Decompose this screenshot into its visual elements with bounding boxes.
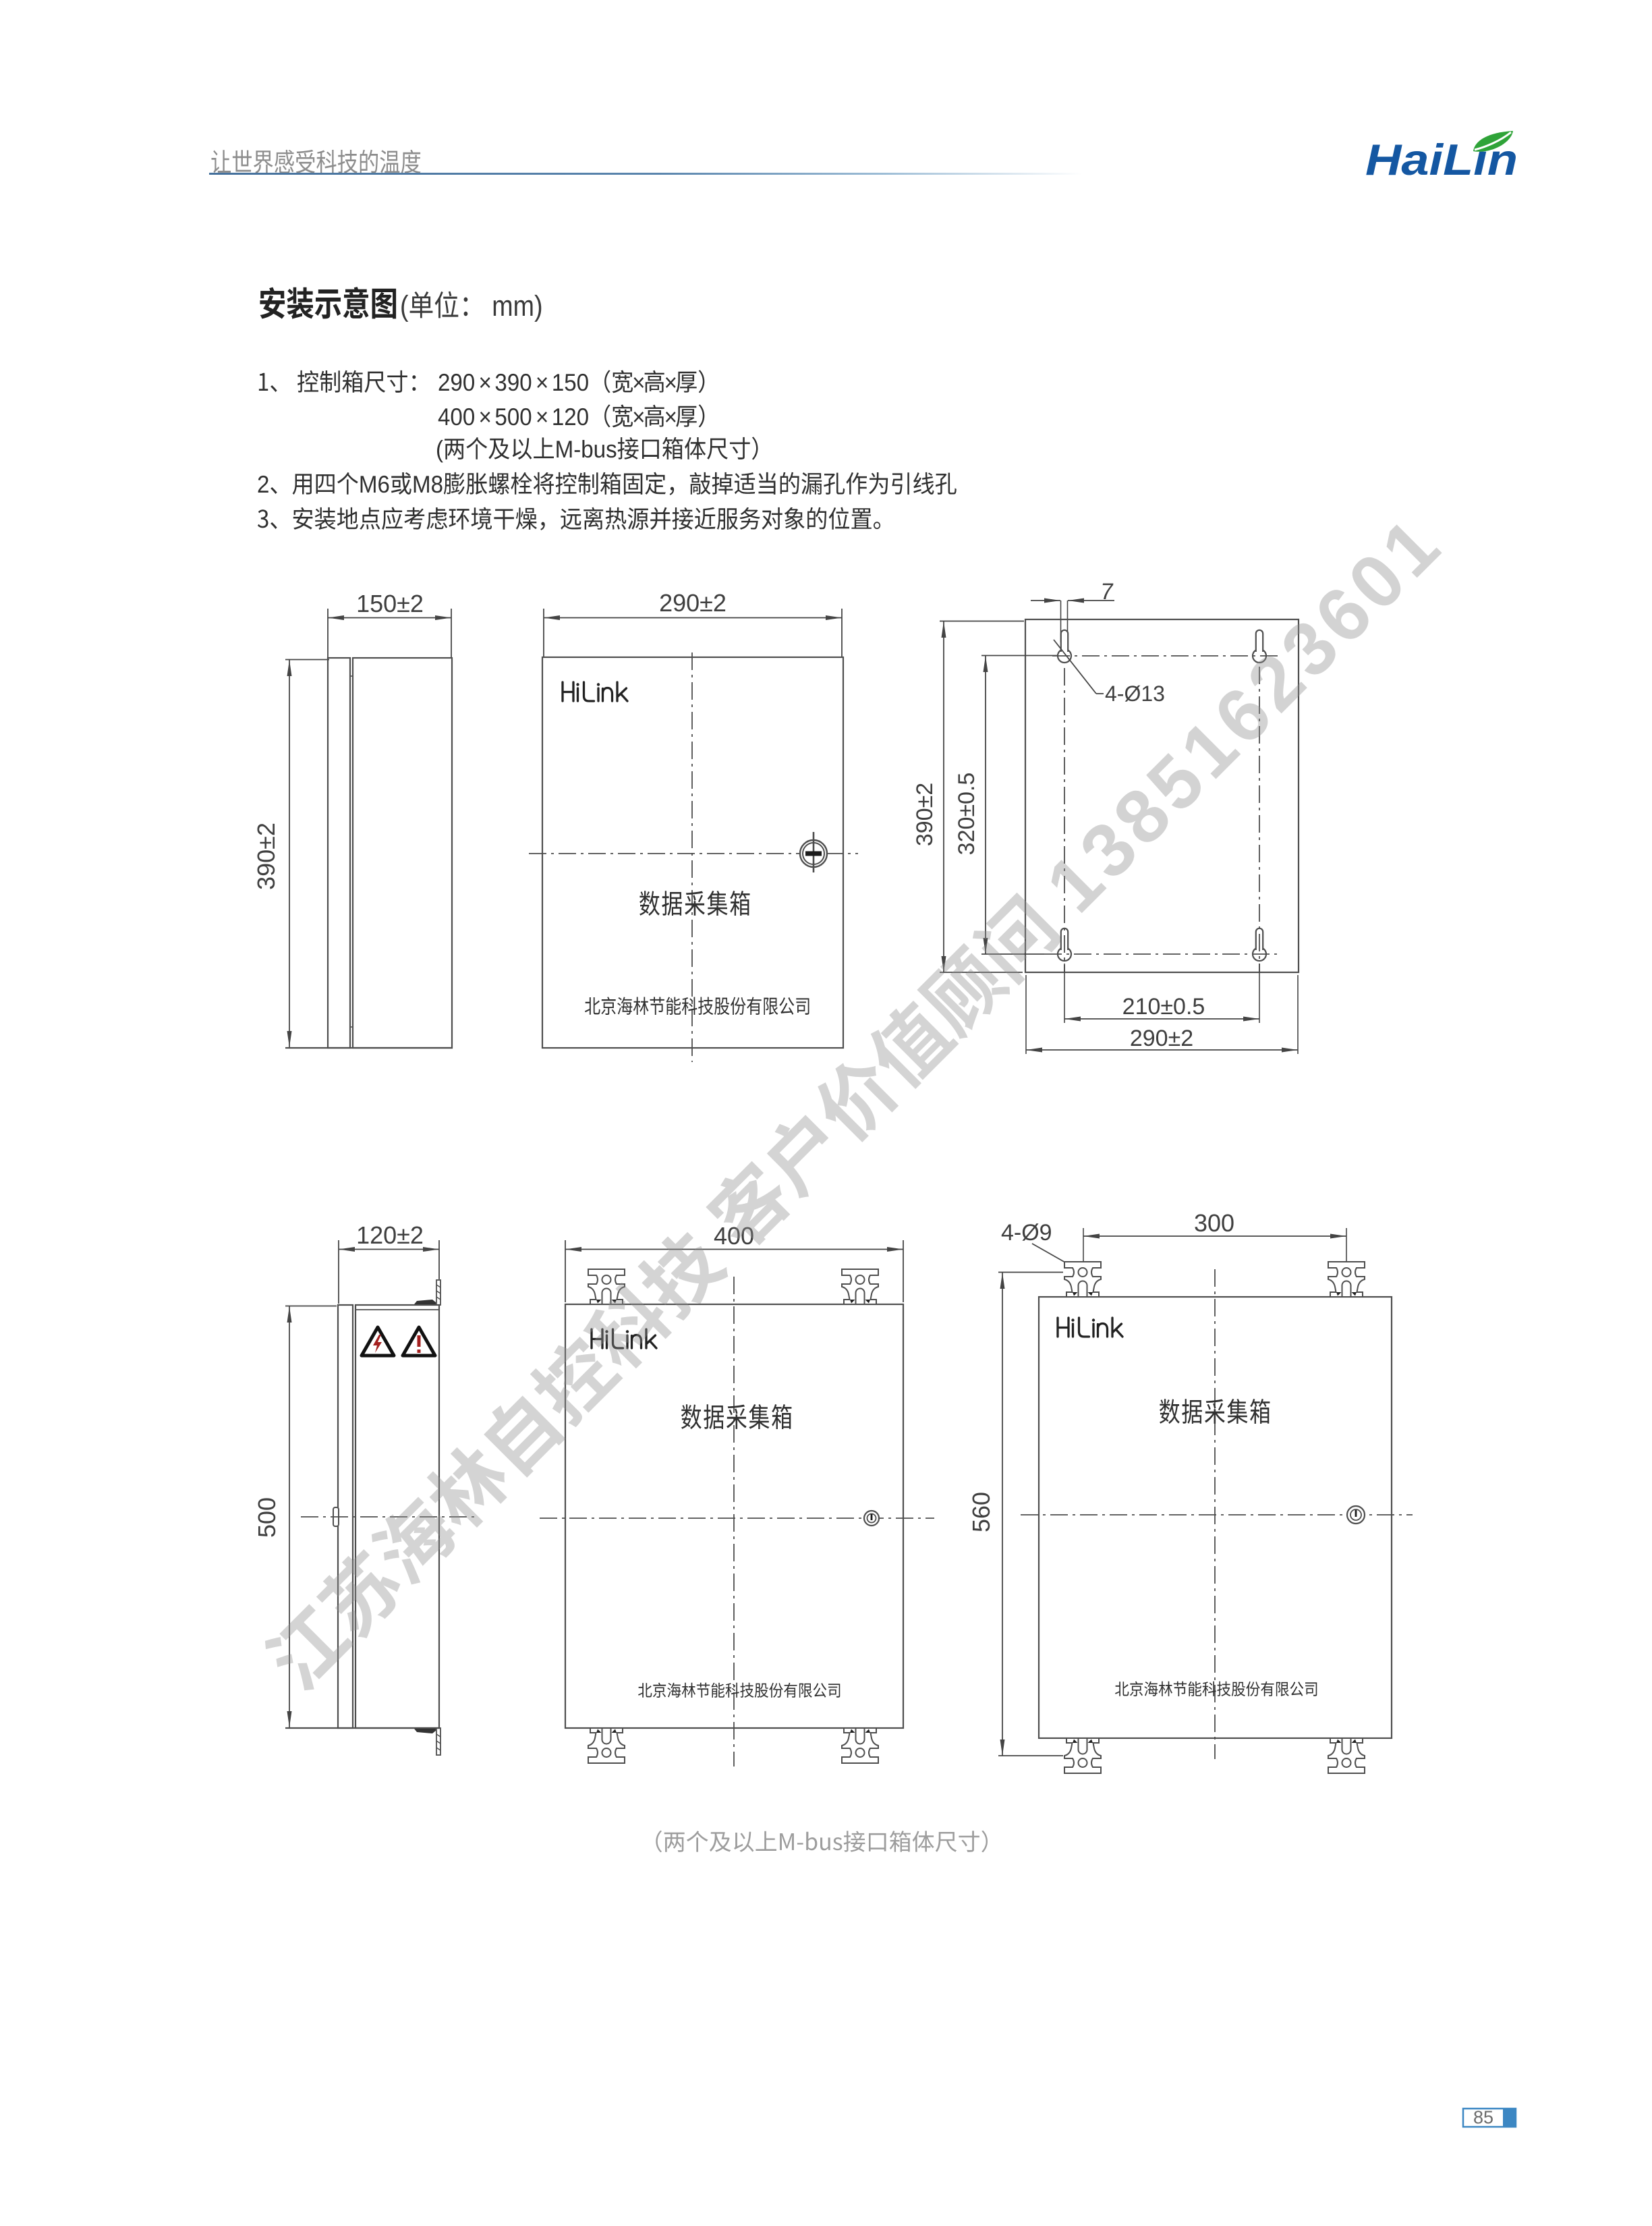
svg-text:4-Ø9: 4-Ø9 bbox=[1001, 1220, 1052, 1246]
svg-text:85: 85 bbox=[1473, 2107, 1493, 2127]
svg-text:120±2: 120±2 bbox=[356, 1221, 424, 1249]
svg-text:300: 300 bbox=[1194, 1209, 1234, 1237]
svg-text:500: 500 bbox=[253, 1497, 281, 1538]
svg-text:560: 560 bbox=[967, 1492, 995, 1532]
